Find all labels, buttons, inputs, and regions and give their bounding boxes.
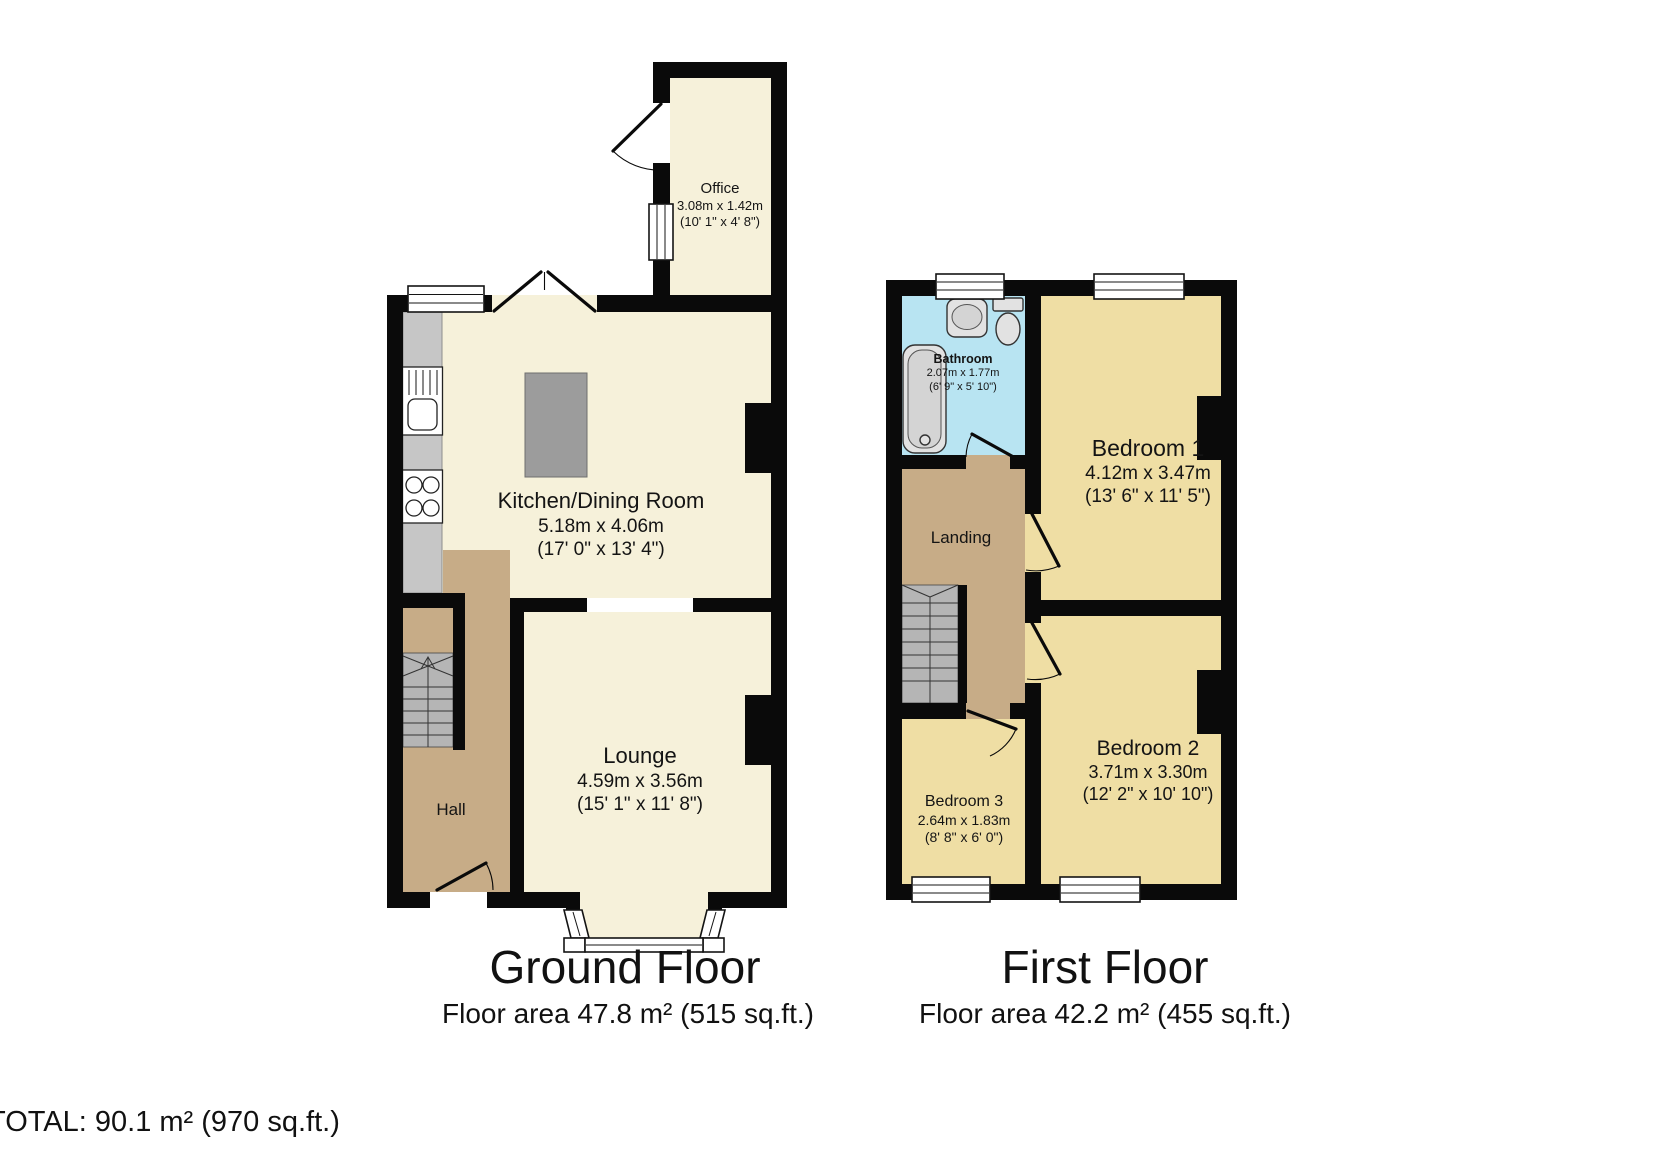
- room-label-kitchen: Kitchen/Dining Room 5.18m x 4.06m (17' 0…: [498, 488, 705, 561]
- room-name: Bathroom: [927, 352, 1000, 367]
- toilet: [993, 298, 1023, 345]
- bedroom1-window: [1094, 274, 1184, 299]
- room-name: Landing: [931, 528, 992, 549]
- room-label-hall: Hall: [436, 800, 465, 821]
- office-window: [649, 204, 673, 260]
- room-name: Lounge: [577, 743, 703, 770]
- room-dims-imperial: (8' 8" x 6' 0"): [918, 829, 1011, 846]
- room-dims-imperial: (13' 6" x 11' 5"): [1085, 485, 1211, 508]
- room-dims-metric: 2.64m x 1.83m: [918, 812, 1011, 829]
- kitchen-window: [408, 286, 484, 312]
- total-area-label: TOTAL: 90.1 m² (970 sq.ft.): [0, 1106, 340, 1139]
- room-label-bathroom: Bathroom 2.07m x 1.77m (6' 9" x 5' 10"): [927, 352, 1000, 394]
- room-label-landing: Landing: [931, 528, 992, 549]
- sink-unit: [403, 367, 443, 435]
- bathroom-window: [936, 274, 1004, 299]
- first-floor-area: Floor area 42.2 m² (455 sq.ft.): [919, 998, 1291, 1030]
- room-label-bedroom1: Bedroom 1 4.12m x 3.47m (13' 6" x 11' 5"…: [1085, 434, 1211, 508]
- room-name: Bedroom 1: [1085, 434, 1211, 462]
- kitchen-counter: [403, 312, 442, 593]
- bedroom2-window: [1060, 877, 1140, 902]
- room-dims-imperial: (10' 1" x 4' 8"): [677, 214, 763, 230]
- room-label-lounge: Lounge 4.59m x 3.56m (15' 1" x 11' 8"): [577, 743, 703, 816]
- kitchen-island: [525, 373, 587, 477]
- room-dims-metric: 2.07m x 1.77m: [927, 367, 1000, 380]
- bedroom3-window: [912, 877, 990, 902]
- hob: [403, 470, 443, 523]
- room-name: Bedroom 3: [918, 792, 1011, 812]
- room-label-office: Office 3.08m x 1.42m (10' 1" x 4' 8"): [677, 180, 763, 230]
- room-label-bedroom2: Bedroom 2 3.71m x 3.30m (12' 2" x 10' 10…: [1083, 736, 1214, 806]
- room-name: Hall: [436, 800, 465, 821]
- floorplan-drawing: [0, 0, 1659, 1159]
- ground-floor-title: Ground Floor: [489, 940, 760, 994]
- room-dims-imperial: (15' 1" x 11' 8"): [577, 793, 703, 816]
- wash-basin: [947, 299, 987, 337]
- room-name: Kitchen/Dining Room: [498, 488, 705, 515]
- room-dims-imperial: (12' 2" x 10' 10"): [1083, 784, 1214, 806]
- staircase-first: [902, 585, 958, 703]
- room-dims-imperial: (17' 0" x 13' 4"): [498, 538, 705, 561]
- ground-floor-area: Floor area 47.8 m² (515 sq.ft.): [442, 998, 814, 1030]
- room-label-bedroom3: Bedroom 3 2.64m x 1.83m (8' 8" x 6' 0"): [918, 792, 1011, 846]
- room-dims-metric: 5.18m x 4.06m: [498, 515, 705, 538]
- office-door: [613, 104, 662, 170]
- room-name: Bedroom 2: [1083, 736, 1214, 762]
- floorplan-canvas: Office 3.08m x 1.42m (10' 1" x 4' 8") Ki…: [0, 0, 1659, 1159]
- room-name: Office: [677, 180, 763, 198]
- room-dims-metric: 3.08m x 1.42m: [677, 198, 763, 214]
- room-dims-imperial: (6' 9" x 5' 10"): [927, 381, 1000, 394]
- staircase-ground: [403, 653, 453, 747]
- room-dims-metric: 3.71m x 3.30m: [1083, 762, 1214, 784]
- first-floor-title: First Floor: [1002, 940, 1209, 994]
- room-dims-metric: 4.12m x 3.47m: [1085, 462, 1211, 485]
- room-dims-metric: 4.59m x 3.56m: [577, 770, 703, 793]
